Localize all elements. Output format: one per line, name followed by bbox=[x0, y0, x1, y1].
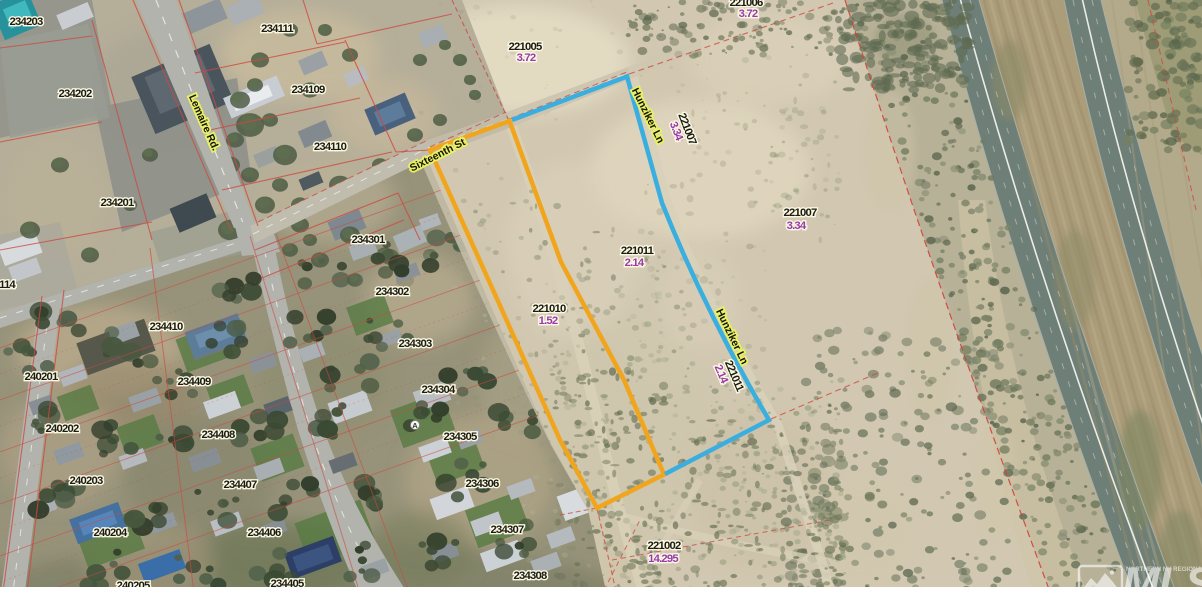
svg-text:234410: 234410 bbox=[150, 321, 183, 333]
svg-text:234202: 234202 bbox=[59, 88, 92, 100]
svg-text:234305: 234305 bbox=[444, 431, 477, 443]
svg-text:234303: 234303 bbox=[399, 338, 432, 350]
svg-text:221007: 221007 bbox=[784, 207, 817, 219]
svg-text:221011: 221011 bbox=[621, 245, 654, 257]
svg-text:234306: 234306 bbox=[466, 478, 499, 490]
svg-text:240201: 240201 bbox=[25, 371, 58, 383]
svg-text:234302: 234302 bbox=[376, 286, 409, 298]
svg-text:234301: 234301 bbox=[352, 234, 385, 246]
svg-text:234111: 234111 bbox=[261, 23, 293, 35]
svg-text:221010: 221010 bbox=[533, 303, 566, 315]
svg-text:234201: 234201 bbox=[101, 197, 134, 209]
svg-text:234409: 234409 bbox=[178, 376, 211, 388]
svg-text:234304: 234304 bbox=[422, 384, 456, 396]
svg-text:234406: 234406 bbox=[248, 527, 281, 539]
svg-text:221002: 221002 bbox=[648, 540, 681, 552]
svg-text:A: A bbox=[412, 421, 418, 430]
svg-text:234307: 234307 bbox=[491, 524, 524, 536]
svg-text:3.34: 3.34 bbox=[787, 220, 807, 232]
svg-text:240202: 240202 bbox=[46, 423, 79, 435]
svg-text:234408: 234408 bbox=[202, 429, 235, 441]
svg-text:240203: 240203 bbox=[70, 475, 103, 487]
svg-text:234407: 234407 bbox=[224, 479, 257, 491]
svg-text:234109: 234109 bbox=[292, 84, 325, 96]
svg-text:14.295: 14.295 bbox=[648, 553, 678, 565]
svg-text:114: 114 bbox=[0, 279, 16, 291]
svg-text:234203: 234203 bbox=[10, 16, 43, 28]
svg-text:MLS: MLS bbox=[1122, 558, 1202, 600]
svg-text:234110: 234110 bbox=[314, 141, 347, 153]
svg-text:3.72: 3.72 bbox=[517, 52, 536, 64]
svg-text:2.14: 2.14 bbox=[625, 257, 645, 269]
svg-text:240204: 240204 bbox=[94, 527, 128, 539]
svg-text:234308: 234308 bbox=[514, 570, 547, 582]
svg-text:1.52: 1.52 bbox=[539, 315, 558, 327]
svg-text:3.72: 3.72 bbox=[739, 8, 758, 20]
